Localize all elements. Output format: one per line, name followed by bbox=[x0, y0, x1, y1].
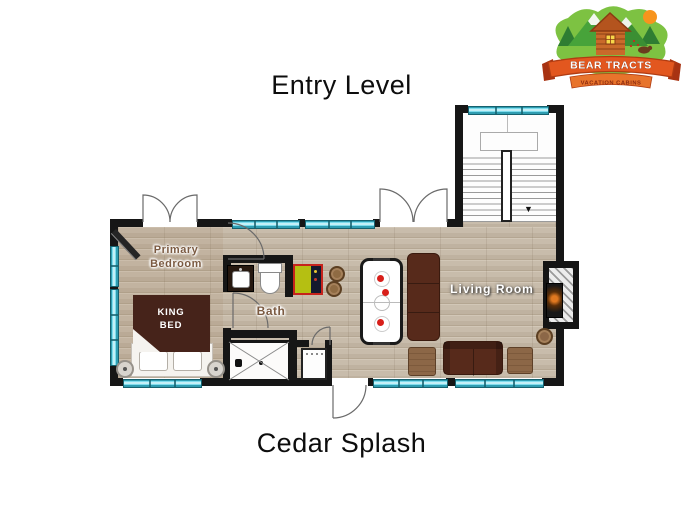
plan-name: Cedar Splash bbox=[0, 428, 683, 459]
berry-dot bbox=[633, 40, 635, 42]
end-table bbox=[408, 347, 436, 376]
wall bbox=[455, 105, 468, 113]
shower bbox=[227, 340, 291, 382]
bed-sheet-fold bbox=[133, 329, 160, 352]
wall-bath-top bbox=[223, 255, 293, 263]
stair-run-right bbox=[512, 153, 556, 222]
window bbox=[123, 379, 202, 388]
logo-tagline-text: VACATION CABINS bbox=[581, 81, 642, 87]
puck-dot bbox=[382, 289, 389, 296]
window-mullion bbox=[350, 221, 352, 228]
berry-dot bbox=[630, 45, 632, 47]
bear-tracts-logo: BEAR TRACTS VACATION CABINS bbox=[540, 0, 683, 100]
lamp-dot bbox=[123, 367, 127, 371]
loveseat bbox=[443, 341, 503, 375]
wall-closet-top bbox=[297, 340, 309, 347]
window-mullion bbox=[174, 380, 176, 387]
firebox bbox=[546, 283, 563, 318]
berry-dot bbox=[637, 44, 639, 46]
cushion-seam bbox=[473, 349, 474, 376]
window-mullion bbox=[328, 221, 330, 228]
washer-appliance bbox=[301, 348, 327, 380]
air-hockey-table bbox=[360, 258, 403, 345]
wall bbox=[110, 378, 123, 386]
nightstand bbox=[207, 360, 225, 378]
logo-name-text: BEAR TRACTS bbox=[570, 60, 652, 72]
center-circle bbox=[374, 295, 390, 311]
wall bbox=[542, 378, 564, 386]
knob-dot bbox=[316, 353, 318, 355]
window-mullion bbox=[513, 380, 515, 387]
stair-landing-line bbox=[507, 113, 508, 132]
floorplan-page: Entry Level Cedar Splash BEAR TRACTS VAC… bbox=[0, 0, 683, 512]
window bbox=[455, 379, 544, 388]
stair-center-divider bbox=[501, 150, 512, 222]
window-mullion bbox=[149, 380, 151, 387]
stool bbox=[326, 281, 342, 297]
puck-dot bbox=[377, 319, 384, 326]
window bbox=[232, 220, 300, 229]
pillow bbox=[139, 351, 168, 371]
french-door-right bbox=[170, 195, 197, 222]
cushion-seam bbox=[408, 283, 439, 284]
sun-icon bbox=[643, 10, 657, 24]
window-mullion bbox=[254, 221, 256, 228]
wall bbox=[455, 105, 463, 227]
foosball-console bbox=[311, 266, 321, 293]
french-door-left bbox=[143, 195, 170, 222]
wall bbox=[556, 105, 564, 262]
french-door-right bbox=[414, 189, 447, 222]
goal-slot bbox=[373, 342, 390, 345]
stairs-down-arrow-icon: ▼ bbox=[524, 204, 533, 214]
bear-head bbox=[648, 46, 652, 50]
loveseat-arm bbox=[496, 342, 502, 374]
window-mullion bbox=[521, 107, 523, 114]
window-mullion bbox=[111, 265, 118, 267]
console-light bbox=[314, 278, 317, 281]
french-door-left bbox=[380, 189, 413, 222]
window-mullion bbox=[422, 380, 424, 387]
fireplace bbox=[543, 261, 579, 329]
shower-head-icon bbox=[235, 359, 242, 367]
cushion-seam bbox=[408, 312, 439, 313]
shower-drain-dot bbox=[259, 361, 263, 365]
loveseat-arm bbox=[444, 342, 450, 374]
window bbox=[373, 379, 448, 388]
goal-slot bbox=[373, 258, 390, 261]
window-mullion bbox=[484, 380, 486, 387]
window bbox=[110, 289, 119, 366]
sink bbox=[232, 271, 250, 288]
stool bbox=[329, 266, 345, 282]
room-label-living-room: Living Room bbox=[443, 282, 541, 296]
knob-dot bbox=[321, 353, 323, 355]
console-light bbox=[314, 270, 317, 273]
window-mullion bbox=[111, 314, 118, 316]
puck-dot bbox=[377, 275, 384, 282]
window-mullion bbox=[276, 221, 278, 228]
wall-bath-bottom bbox=[223, 330, 297, 338]
stool bbox=[536, 328, 553, 345]
room-label-primary-bedroom: Primary Bedroom bbox=[139, 243, 213, 271]
wall-bath-right bbox=[285, 255, 293, 297]
stair-run-left bbox=[463, 153, 501, 222]
faucet-dot bbox=[239, 268, 242, 271]
window-mullion bbox=[495, 107, 497, 114]
knob-dot bbox=[306, 353, 308, 355]
window bbox=[110, 246, 119, 287]
window-mullion bbox=[111, 339, 118, 341]
window bbox=[305, 220, 375, 229]
window-mullion bbox=[398, 380, 400, 387]
pillow bbox=[173, 351, 202, 371]
stair-landing bbox=[480, 132, 538, 151]
sofa-long bbox=[407, 253, 440, 341]
room-label-bath: Bath bbox=[248, 304, 294, 318]
king-bed-label: KING BED bbox=[147, 306, 195, 332]
king-bed: KING BED bbox=[133, 295, 210, 352]
lamp-dot bbox=[214, 367, 218, 371]
nightstand bbox=[116, 360, 134, 378]
window-stairwell bbox=[468, 106, 549, 115]
loveseat-back bbox=[444, 342, 502, 349]
end-table bbox=[507, 347, 533, 374]
wall bbox=[197, 219, 232, 227]
knob-dot bbox=[311, 353, 313, 355]
foosball-table bbox=[293, 264, 323, 295]
bath-vanity bbox=[227, 265, 254, 292]
entry-door bbox=[333, 385, 366, 418]
toilet-bowl bbox=[260, 272, 280, 294]
